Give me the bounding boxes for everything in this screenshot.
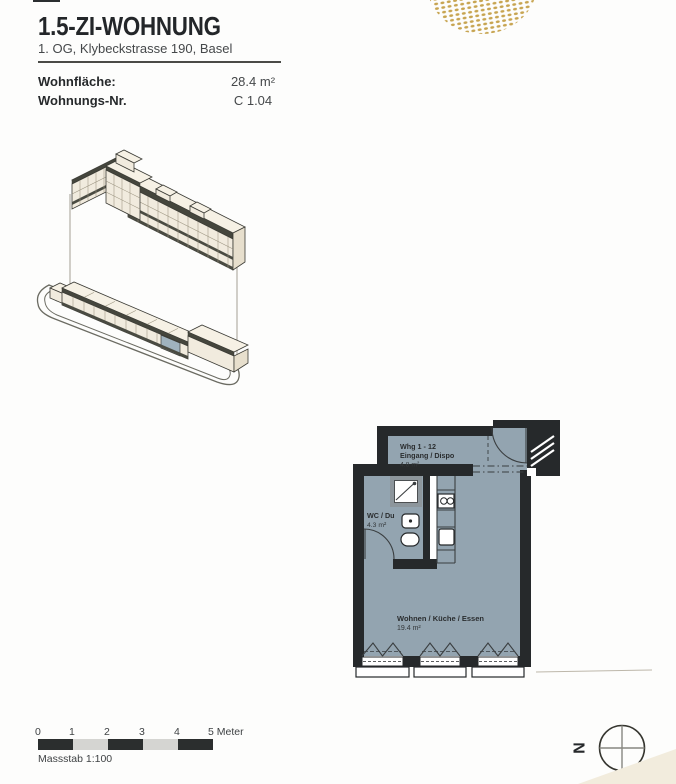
scale-caption: Massstab 1:100 xyxy=(38,753,112,765)
scale-segment xyxy=(73,739,108,750)
header-divider xyxy=(38,61,281,63)
room-label-wc: WC / Du xyxy=(367,511,395,520)
info-row-wohnflaeche: Wohnfläche: 28.4 m² xyxy=(38,74,298,92)
scale-segment xyxy=(38,739,73,750)
toilet xyxy=(401,533,419,546)
right-block-side xyxy=(234,349,248,372)
scale-tick: 1 xyxy=(69,726,75,738)
wall-entrance-top xyxy=(377,426,493,436)
basin-drain xyxy=(409,519,412,522)
wall-entrance-left xyxy=(377,426,388,464)
wall-corridor-top xyxy=(493,420,527,428)
scale-tick: 2 xyxy=(104,726,110,738)
wall-bottom-pier-1 xyxy=(403,656,420,667)
scale-tick: 5 Meter xyxy=(208,726,244,738)
room-area-wc: 4.3 m² xyxy=(367,522,387,529)
wall-wc-bottom xyxy=(393,559,437,569)
wall-bottom-pier-2 xyxy=(460,656,478,667)
room-area-living: 19.4 m² xyxy=(397,625,421,632)
row-roofband xyxy=(62,288,188,346)
scale-segment xyxy=(143,739,178,750)
document-page: 1.5-ZI-WOHNUNG 1. OG, Klybeckstrasse 190… xyxy=(0,0,676,784)
info-row-wohnungs-nr: Wohnungs-Nr. C 1.04 xyxy=(38,93,298,111)
page-subtitle: 1. OG, Klybeckstrasse 190, Basel xyxy=(38,41,232,56)
wall-bottom-corner-left xyxy=(353,656,362,667)
corner-triangle xyxy=(578,749,676,784)
wall-wc-right xyxy=(423,476,430,569)
upper-building-wing xyxy=(72,150,245,270)
halftone-dot-decoration xyxy=(420,0,540,40)
corner-decoration xyxy=(578,744,676,784)
building-isometric-view xyxy=(28,142,263,387)
room-label-living: Wohnen / Küche / Essen xyxy=(397,614,484,623)
halftone-circle xyxy=(427,0,537,34)
info-label: Wohnungs-Nr. xyxy=(38,93,127,108)
shower-head-icon xyxy=(413,482,417,486)
ground-line xyxy=(536,670,652,672)
room-label-entrance-1: Whg 1 - 12 xyxy=(400,442,436,451)
info-label: Wohnfläche: xyxy=(38,74,116,89)
scale-segment xyxy=(108,739,143,750)
scale-segment xyxy=(178,739,213,750)
shaft-notch xyxy=(527,468,536,476)
room-label-entrance-2: Eingang / Dispo xyxy=(400,451,455,460)
room-area-entrance: 4.8 m² xyxy=(400,462,420,469)
info-value: 28.4 m² xyxy=(188,74,318,89)
scale-tick: 3 xyxy=(139,726,145,738)
wing-long-endcap xyxy=(233,227,245,270)
page-title: 1.5-ZI-WOHNUNG xyxy=(38,11,221,42)
lower-building-row xyxy=(50,282,248,372)
wall-left xyxy=(353,464,364,667)
floor-main-room xyxy=(364,464,520,656)
top-crop-mark xyxy=(33,0,60,2)
scale-tick: 4 xyxy=(174,726,180,738)
floor-plan: Whg 1 - 12 Eingang / Dispo 4.8 m² WC / D… xyxy=(340,410,676,700)
scale-bar-segments xyxy=(38,739,213,750)
duct-strip xyxy=(430,476,437,569)
window-sill xyxy=(414,667,466,677)
info-value: C 1.04 xyxy=(188,93,318,108)
scale-bar: 0 1 2 3 4 5 Meter Massstab 1:100 xyxy=(38,726,268,770)
oven xyxy=(439,529,454,545)
window-sill xyxy=(356,667,409,677)
wall-right xyxy=(520,470,531,667)
window-sill xyxy=(472,667,524,677)
wall-bottom-corner-right xyxy=(518,656,531,667)
scale-tick: 0 xyxy=(35,726,41,738)
shaft-block xyxy=(527,420,560,476)
